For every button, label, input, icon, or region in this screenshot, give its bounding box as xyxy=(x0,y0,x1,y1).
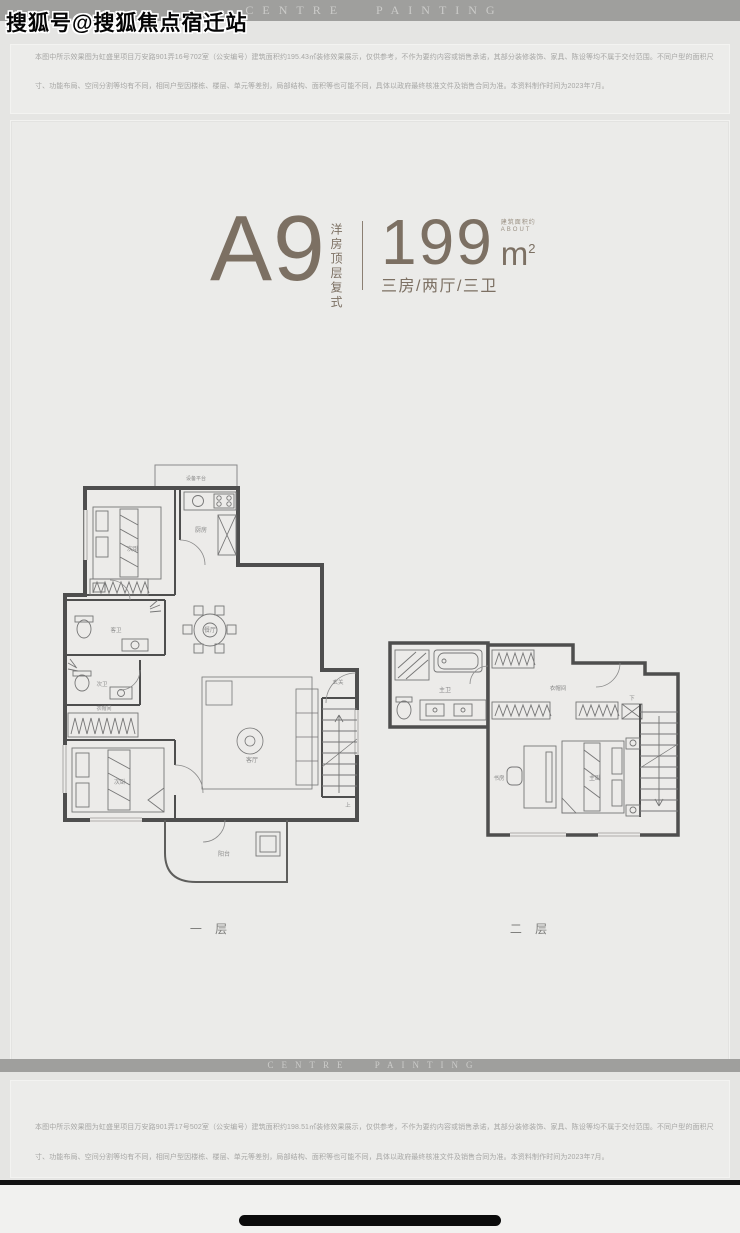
phone-footer xyxy=(0,1185,740,1233)
floor1-caption: 一 层 xyxy=(171,920,251,937)
top-disclaimer-line1: 本图中所示效果图为虹盛里项目万安路901弄16号702室（公安编号）建筑面积约1… xyxy=(35,52,714,62)
room-label-study: 书房 xyxy=(493,774,505,782)
room-label-equip: 设备平台 xyxy=(186,475,206,482)
top-disclaimer-line2: 寸、功能布局、空间分割等均有不同，相同户型因楼栋、楼层、单元等差别，局部结构、面… xyxy=(35,81,609,91)
room-label-bath-master: 主卫 xyxy=(439,686,451,694)
floor2-caption: 二 层 xyxy=(491,920,571,937)
room-label-bed3: 次卧 xyxy=(114,778,126,786)
unit-area-note-en: ABOUT xyxy=(501,227,532,234)
unit-area: 199 建筑面积约 ABOUT m2 xyxy=(381,216,536,268)
room-label-bath-second: 次卫 xyxy=(96,680,108,688)
floorplan-second-floor: 主卫 衣帽间 书房 主卧 下 xyxy=(388,638,698,848)
floorplan-first-floor: 设备平台 次卧 厨房 客卫 次卫 餐厅 衣帽间 次卧 客厅 玄关 阳台 上 xyxy=(60,455,390,900)
unit-area-value: 199 xyxy=(381,216,494,268)
bottom-disclaimer-line2: 寸、功能布局、空间分割等均有不同，相同户型因楼栋、楼层、单元等差别，局部结构、面… xyxy=(35,1152,609,1162)
header-brand-text: CENTRE PAINTING xyxy=(245,3,503,17)
unit-area-unit-sup: 2 xyxy=(528,241,535,256)
bottom-disclaimer-line1: 本图中所示效果图为虹盛里项目万安路901弄17号502室（公安编号）建筑面积约1… xyxy=(35,1122,714,1132)
room-label-kitchen: 厨房 xyxy=(195,526,207,534)
balcony-planter xyxy=(256,832,280,856)
room-label-bed2: 次卧 xyxy=(127,545,139,553)
balcony-outline xyxy=(165,820,287,882)
footer-brand-bar: CENTRE PAINTING xyxy=(0,1059,740,1072)
unit-area-unit-letter: m xyxy=(501,235,529,272)
top-disclaimer-box: 本图中所示效果图为虹盛里项目万安路901弄16号702室（公安编号）建筑面积约1… xyxy=(10,44,730,114)
watermark-text: 搜狐号@搜狐焦点宿迁站 xyxy=(6,7,247,37)
outer-walls-floor2 xyxy=(488,645,678,835)
title-divider xyxy=(362,221,363,290)
home-indicator[interactable] xyxy=(239,1215,501,1226)
room-label-living: 客厅 xyxy=(246,756,258,764)
unit-layout: 三房/两厅/三卫 xyxy=(381,272,498,296)
stairs-up-label: 上 xyxy=(345,801,351,809)
room-label-balcony: 阳台 xyxy=(218,850,230,858)
unit-area-unit-block: 建筑面积约 ABOUT m2 xyxy=(501,220,536,268)
room-label-foyer: 玄关 xyxy=(332,678,344,686)
room-label-closet2: 衣帽间 xyxy=(550,684,567,692)
room-label-dining: 餐厅 xyxy=(204,626,216,634)
unit-area-unit: m2 xyxy=(501,234,536,268)
room-label-bath-guest: 客卫 xyxy=(110,626,122,634)
stairs-down-label: 下 xyxy=(629,695,635,702)
unit-name: A9 xyxy=(210,203,326,293)
room-label-closet1: 衣帽间 xyxy=(96,705,111,712)
bottom-disclaimer-box: 本图中所示效果图为虹盛里项目万安路901弄17号502室（公安编号）建筑面积约1… xyxy=(10,1080,730,1178)
footer-brand-text: CENTRE PAINTING xyxy=(268,1060,481,1070)
unit-category-vertical: 洋房顶层复式 xyxy=(328,223,345,310)
unit-area-note-cn: 建筑面积约 xyxy=(501,220,536,227)
room-label-bed-master: 主卧 xyxy=(589,774,601,782)
